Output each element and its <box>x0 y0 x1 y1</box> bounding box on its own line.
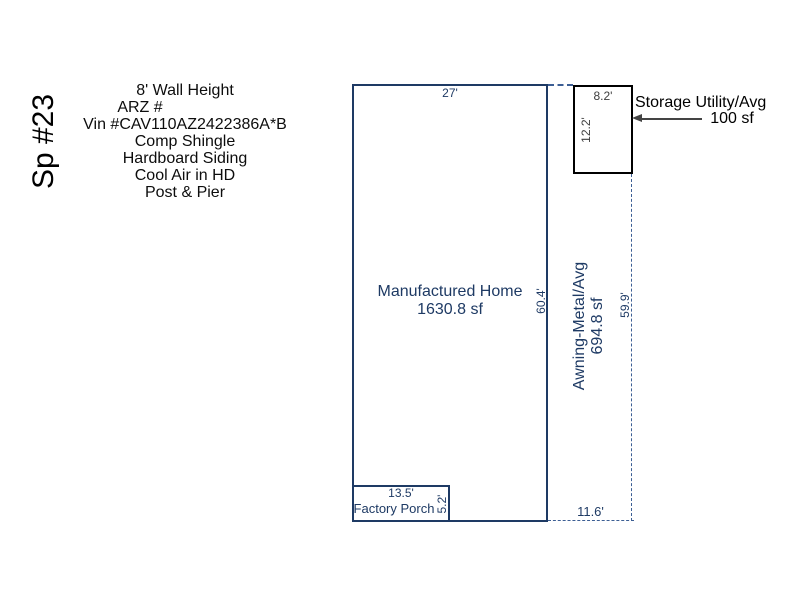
awning-name: Awning-Metal/Avg <box>571 251 589 401</box>
awning-area: 694.8 sf <box>589 251 607 401</box>
info-line-wall-height: 8' Wall Height <box>60 82 310 99</box>
home-height-dimension: 60.4' <box>534 281 548 321</box>
appraisal-sketch-page: Sp #23 8' Wall Height ARZ # Vin #CAV110A… <box>0 0 800 600</box>
callout-arrow-line <box>642 118 702 120</box>
porch-height-dimension: 5.2' <box>435 487 449 521</box>
storage-height-dimension: 12.2' <box>579 110 593 150</box>
callout-arrowhead-icon <box>632 114 642 122</box>
storage-width-dimension: 8.2' <box>573 89 633 103</box>
property-info-block: 8' Wall Height ARZ # Vin #CAV110AZ242238… <box>60 82 310 201</box>
storage-name: Storage Utility/Avg <box>635 95 800 111</box>
home-name: Manufactured Home <box>352 283 548 301</box>
info-line-vin: Vin #CAV110AZ2422386A*B <box>60 116 310 133</box>
awning-right-edge-dashed <box>631 174 632 521</box>
info-line-cooling: Cool Air in HD <box>60 167 310 184</box>
awning-label-block: Awning-Metal/Avg 694.8 sf <box>571 251 607 401</box>
home-width-dimension: 27' <box>352 86 548 100</box>
info-line-arz: ARZ # <box>15 99 265 116</box>
awning-bottom-edge-dashed <box>548 520 634 521</box>
info-line-roof: Comp Shingle <box>60 133 310 150</box>
awning-width-dimension: 11.6' <box>548 505 633 519</box>
porch-name: Factory Porch <box>350 501 438 516</box>
awning-top-edge-dashed <box>548 84 573 86</box>
awning-height-dimension: 59.9' <box>618 285 632 325</box>
storage-callout-block: Storage Utility/Avg 100 sf <box>635 95 800 127</box>
home-area: 1630.8 sf <box>352 301 548 319</box>
home-label-block: Manufactured Home 1630.8 sf <box>352 283 548 319</box>
info-line-siding: Hardboard Siding <box>60 150 310 167</box>
info-line-foundation: Post & Pier <box>60 184 310 201</box>
